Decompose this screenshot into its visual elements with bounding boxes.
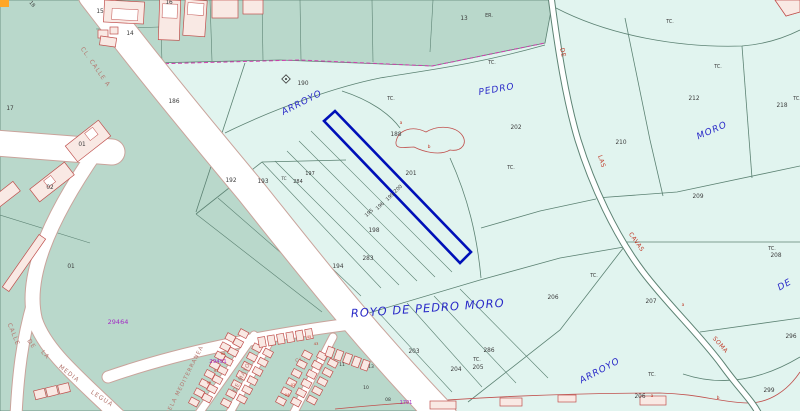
parcel-number: 201 — [405, 171, 416, 177]
land-use-code: TC. — [589, 273, 598, 279]
subparcel-letter: b — [428, 144, 431, 150]
parcel-number: 13 — [460, 16, 468, 22]
row-house — [286, 332, 295, 343]
parcel-number: 197 — [305, 171, 315, 177]
parcel-number: 13 — [368, 364, 374, 370]
parcel-number: 10 — [363, 385, 369, 391]
parcel-number: 206 — [634, 394, 645, 400]
land-use-code: TC. — [386, 96, 395, 102]
house-number: 95 — [207, 380, 212, 385]
parcel-number: 296 — [785, 334, 796, 340]
land-use-code: TC. — [792, 96, 800, 102]
parcel-number: 209 — [692, 194, 703, 200]
house-number: 97 — [214, 368, 219, 373]
parcel-number: 17 — [6, 106, 14, 112]
parcel-number: 206 — [547, 295, 558, 301]
house-number: 02 — [291, 382, 296, 387]
parcel-number: 11 — [339, 362, 345, 368]
parcel-number: 218 — [776, 103, 787, 109]
row-house — [295, 330, 304, 341]
subparcel-letter: a — [682, 303, 685, 308]
corner-marker — [0, 0, 9, 7]
house-number: 99 — [221, 351, 226, 356]
land-use-code: ER. — [485, 13, 493, 19]
parcel-number: 205 — [472, 365, 483, 371]
parcel-number: 193 — [257, 179, 268, 185]
parcel-number: 16 — [165, 0, 173, 6]
parcel-number: 15 — [96, 9, 104, 15]
house-number: 04 — [285, 392, 290, 397]
subparcel-letter: a — [400, 121, 403, 126]
parcel-number: 203 — [408, 349, 419, 355]
urban-block-number: 29491 — [209, 359, 227, 365]
land-use-code: TC. — [665, 19, 674, 25]
parcel-number: 01 — [67, 264, 75, 270]
parcel-number: 202 — [510, 125, 521, 131]
parcel-number: 286 — [483, 348, 494, 354]
parcel-number: 02 — [46, 185, 54, 191]
row-house — [258, 336, 267, 347]
land-use-code: TC — [280, 176, 286, 181]
parcel-number: 284 — [293, 179, 303, 185]
subparcel-letter: a — [651, 394, 654, 399]
urban-block-number: 29464 — [108, 318, 129, 326]
urban-block-number: 1701 — [400, 400, 413, 406]
parcel-number: 192 — [225, 178, 236, 184]
subparcel-letter: b — [717, 395, 720, 401]
land-use-code: TC. — [506, 165, 515, 171]
parcel-number: 186 — [168, 99, 179, 105]
parcel-number: 190 — [297, 81, 308, 87]
parcel-number: 299 — [763, 388, 774, 394]
parcel-number: 01 — [78, 142, 86, 148]
cadastral-map[interactable]: ARROYOPEDROMOROROYO DE PEDRO MOROARROYOD… — [0, 0, 800, 411]
land-use-code: TC. — [767, 246, 776, 252]
house-number: 45 — [307, 334, 312, 339]
parcel-number: 14 — [126, 31, 134, 37]
parcel-number: 212 — [688, 96, 699, 102]
parcel-number: 210 — [615, 140, 626, 146]
land-use-code: TC. — [487, 60, 496, 66]
house-number: 43 — [314, 341, 319, 346]
map-canvas[interactable]: ARROYOPEDROMOROROYO DE PEDRO MOROARROYOD… — [0, 0, 800, 411]
parcel-number: 283 — [362, 256, 373, 262]
parcel-number: 208 — [770, 253, 781, 259]
parcel-number: 188 — [390, 132, 401, 138]
land-use-code: TC. — [472, 357, 481, 363]
parcel-number: 207 — [645, 299, 656, 305]
row-house — [267, 335, 276, 346]
parcel-number: 204 — [450, 367, 461, 373]
parcel-number: 194 — [332, 264, 343, 270]
row-house — [276, 333, 285, 344]
land-use-code: TC. — [713, 64, 722, 70]
parcel-number: 08 — [385, 397, 391, 403]
parcel-number: 198 — [368, 228, 379, 234]
land-use-code: TC. — [647, 372, 656, 378]
